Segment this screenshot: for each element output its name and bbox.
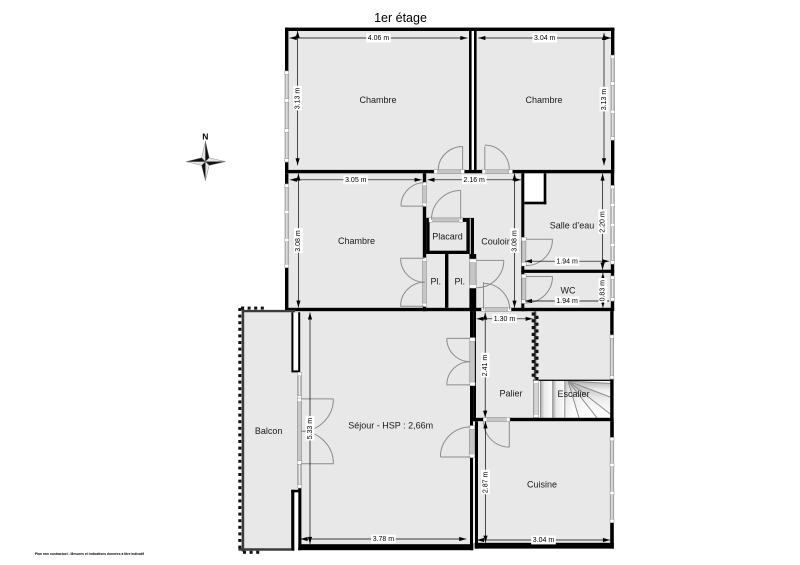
svg-text:N: N bbox=[202, 132, 208, 142]
svg-text:Chambre: Chambre bbox=[359, 95, 396, 105]
svg-text:Balcon: Balcon bbox=[255, 426, 283, 436]
svg-text:Cuisine: Cuisine bbox=[527, 480, 557, 490]
svg-text:Pl.: Pl. bbox=[455, 277, 466, 287]
svg-text:3.08 m: 3.08 m bbox=[511, 230, 518, 252]
svg-text:3.13 m: 3.13 m bbox=[601, 89, 608, 111]
svg-text:3.04 m: 3.04 m bbox=[534, 35, 556, 42]
svg-text:3.78 m: 3.78 m bbox=[373, 536, 395, 543]
svg-text:1.94 m: 1.94 m bbox=[556, 258, 578, 265]
svg-text:3.13 m: 3.13 m bbox=[294, 88, 301, 110]
svg-text:2.20 m: 2.20 m bbox=[599, 211, 606, 233]
svg-text:4.06 m: 4.06 m bbox=[368, 35, 390, 42]
svg-text:1.30 m: 1.30 m bbox=[494, 316, 516, 323]
svg-text:Chambre: Chambre bbox=[338, 236, 375, 246]
svg-text:3.08 m: 3.08 m bbox=[295, 230, 302, 252]
svg-text:3.05 m: 3.05 m bbox=[345, 177, 367, 184]
svg-text:Chambre: Chambre bbox=[525, 95, 562, 105]
svg-text:1.94 m: 1.94 m bbox=[556, 298, 578, 305]
svg-text:Pl.: Pl. bbox=[430, 277, 441, 287]
svg-text:3.04 m: 3.04 m bbox=[533, 537, 555, 544]
svg-text:Couloir: Couloir bbox=[481, 237, 510, 247]
svg-text:WC: WC bbox=[561, 286, 576, 296]
svg-text:Plan non contractuel - Mesures: Plan non contractuel - Mesures et indica… bbox=[35, 552, 145, 556]
svg-text:Salle d’eau: Salle d’eau bbox=[550, 221, 595, 231]
svg-text:Séjour - HSP : 2,66m: Séjour - HSP : 2,66m bbox=[348, 420, 433, 430]
svg-text:Escalier: Escalier bbox=[557, 389, 589, 399]
svg-text:0.83 m: 0.83 m bbox=[600, 280, 607, 302]
svg-text:2.16 m: 2.16 m bbox=[463, 177, 485, 184]
svg-text:1er étage: 1er étage bbox=[374, 11, 427, 25]
svg-text:Placard: Placard bbox=[432, 231, 463, 241]
svg-text:2.87 m: 2.87 m bbox=[482, 472, 489, 494]
svg-text:Palier: Palier bbox=[499, 389, 522, 399]
svg-text:2.41 m: 2.41 m bbox=[482, 355, 489, 377]
svg-text:5.33 m: 5.33 m bbox=[307, 418, 314, 440]
